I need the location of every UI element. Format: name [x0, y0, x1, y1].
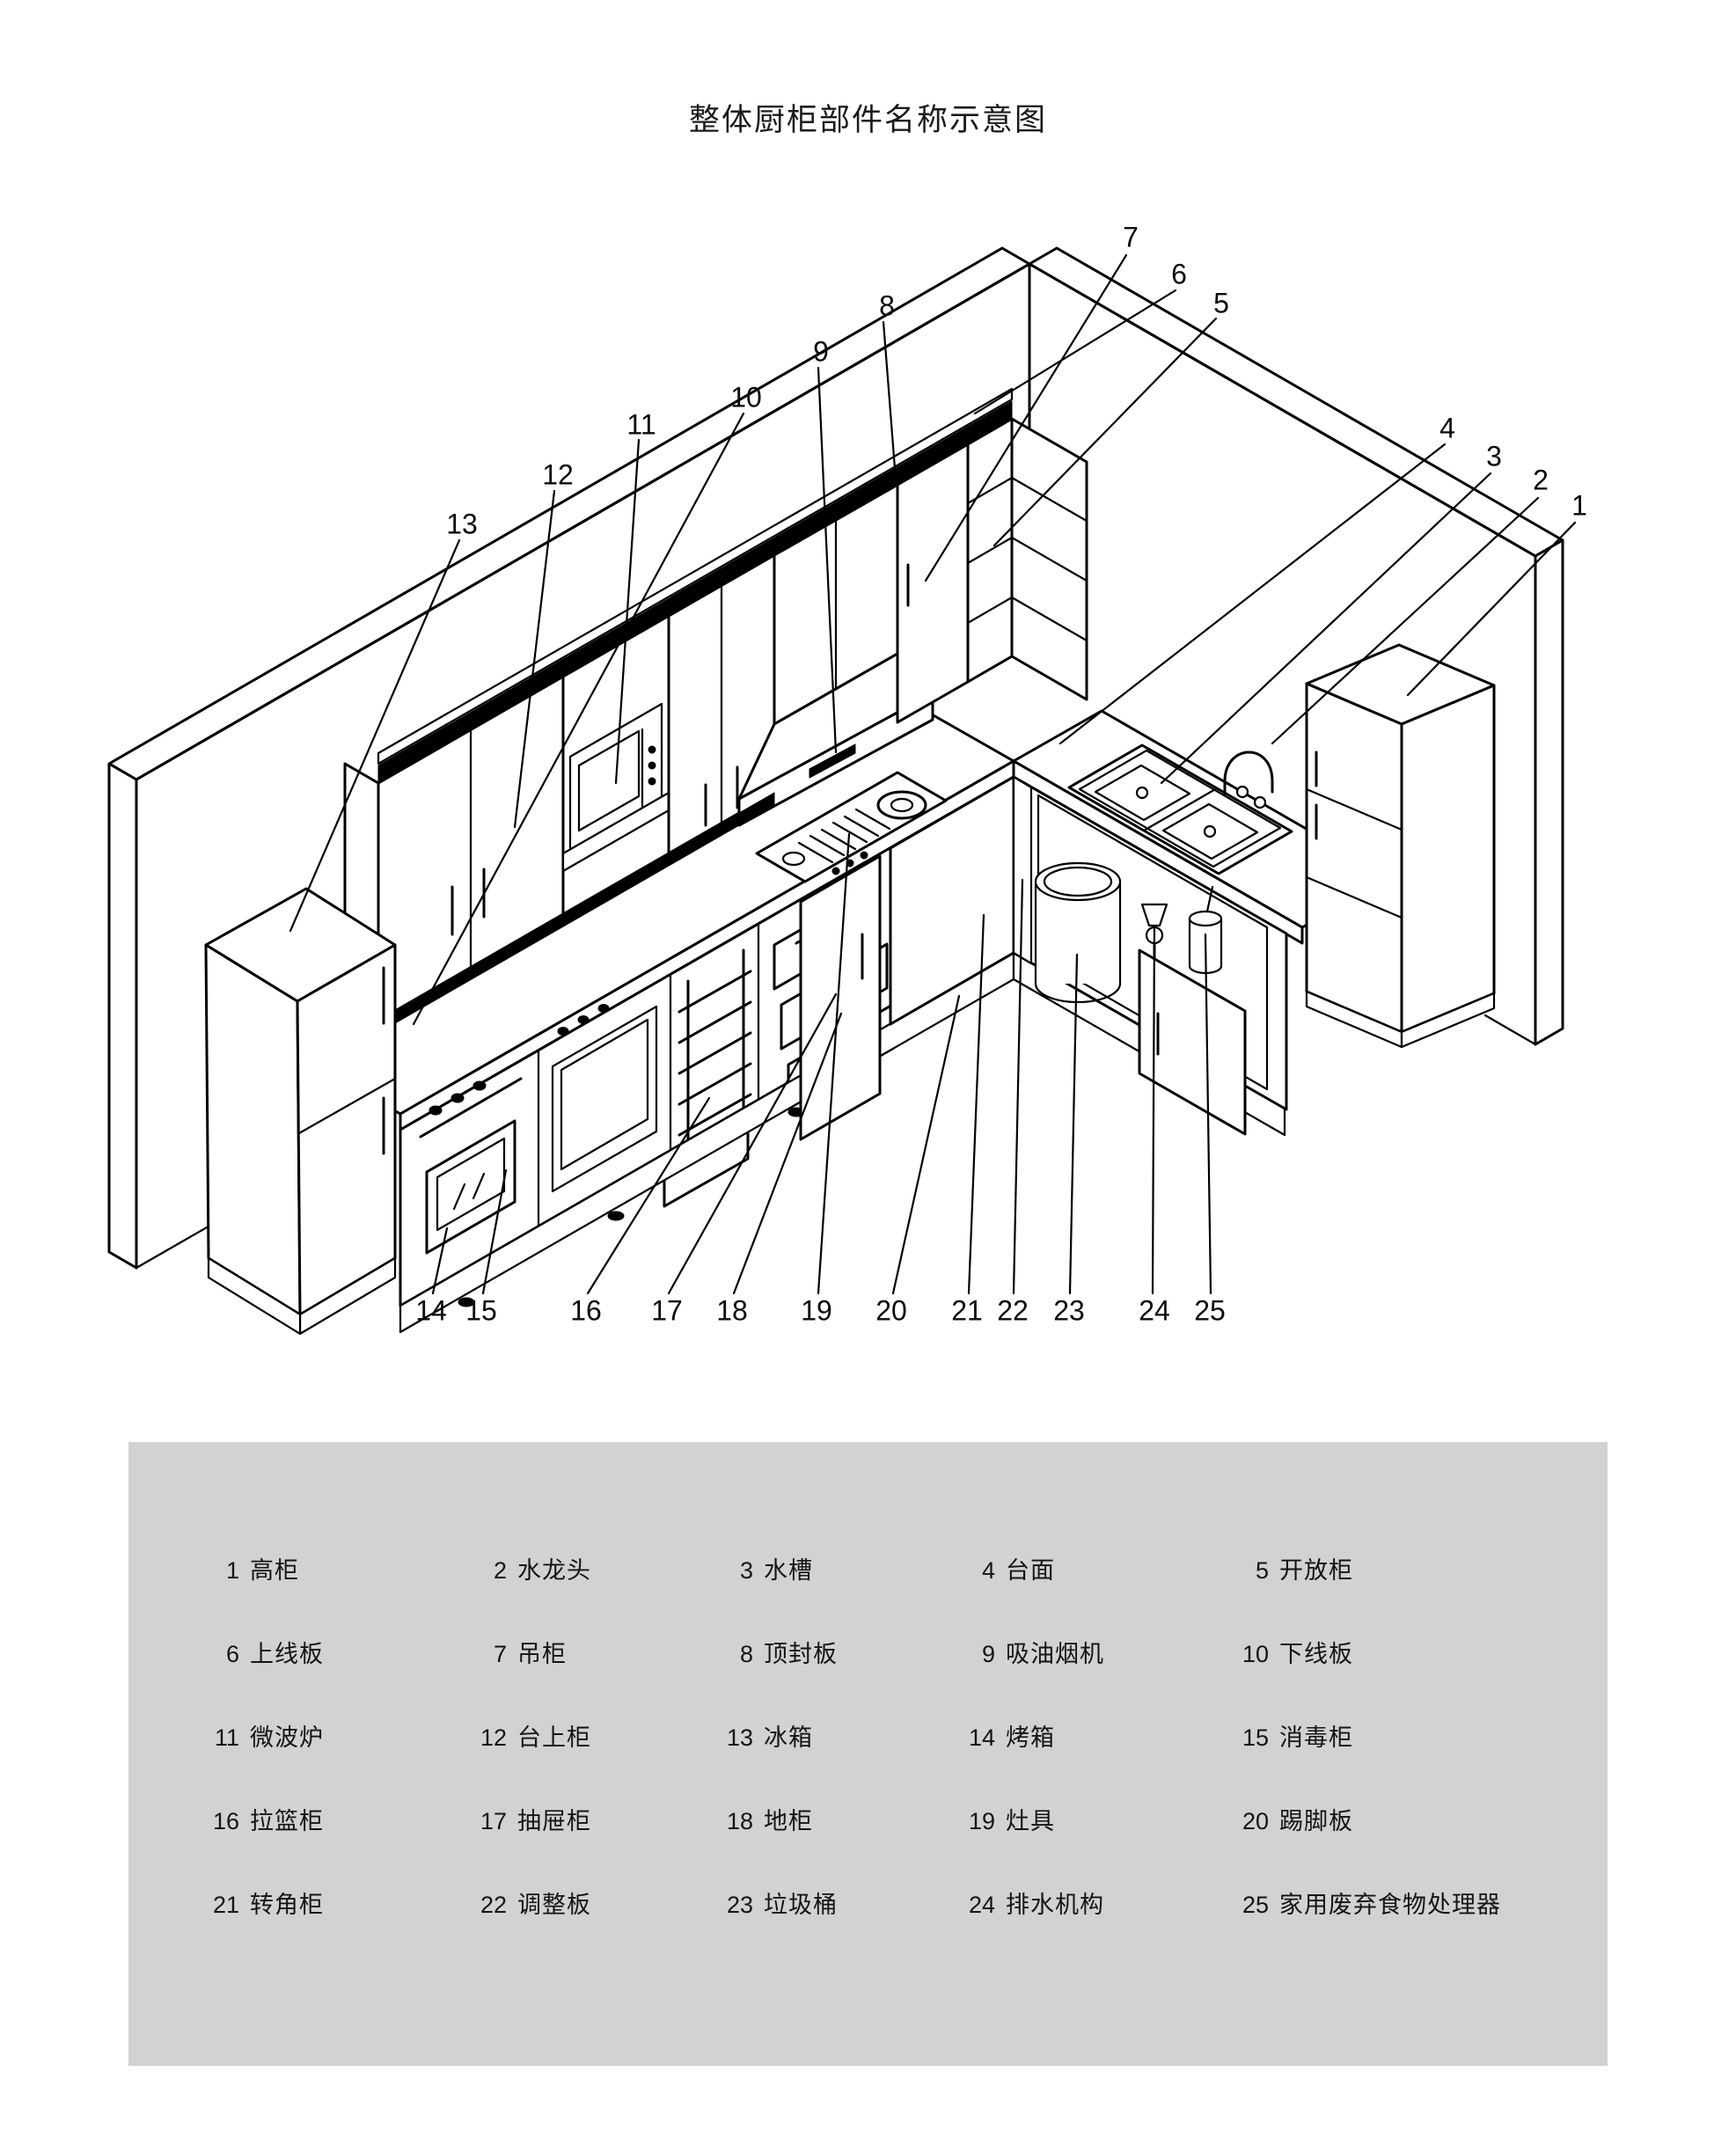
legend-item-name: 顶封板 — [764, 1635, 838, 1669]
legend-item-num: 7 — [468, 1641, 507, 1668]
legend-item-num: 20 — [1230, 1808, 1269, 1835]
legend-item-14: 14烤箱 — [956, 1718, 1230, 1753]
legend-item-num: 1 — [201, 1557, 239, 1585]
legend-item-12: 12台上柜 — [468, 1718, 714, 1753]
legend-item-num: 5 — [1230, 1557, 1269, 1585]
legend-item-19: 19灶具 — [956, 1802, 1230, 1836]
legend-item-num: 15 — [1230, 1724, 1269, 1752]
legend-item-16: 16拉篮柜 — [201, 1802, 468, 1836]
legend-item-21: 21转角柜 — [201, 1885, 468, 1920]
legend-item-name: 抽屉柜 — [517, 1802, 591, 1836]
legend-item-name: 调整板 — [517, 1885, 591, 1920]
legend-item-name: 排水机构 — [1006, 1885, 1104, 1920]
legend-item-name: 拉篮柜 — [250, 1802, 324, 1836]
legend-item-name: 踢脚板 — [1279, 1802, 1353, 1836]
legend-row-4: 16拉篮柜 17抽屉柜 18地柜 19灶具 20踢脚板 — [201, 1777, 1608, 1861]
hanging-cabinet-7 — [897, 444, 968, 722]
legend-item-1: 1高柜 — [201, 1551, 468, 1585]
legend-item-num: 18 — [714, 1808, 753, 1835]
kitchen-diagram: .f{fill:#ffffff;stroke:#000;stroke-width… — [0, 0, 1736, 1408]
legend-item-num: 6 — [201, 1641, 239, 1668]
open-door-base — [801, 856, 880, 1139]
legend-item-num: 12 — [468, 1724, 507, 1752]
fridge-13 — [206, 889, 395, 1334]
legend-row-2: 6上线板 7吊柜 8顶封板 9吸油烟机 10下线板 — [201, 1610, 1608, 1694]
legend-item-name: 台面 — [1006, 1551, 1055, 1585]
legend-item-name: 高柜 — [250, 1551, 299, 1585]
legend-item-num: 10 — [1230, 1641, 1269, 1668]
legend-item-15: 15消毒柜 — [1230, 1718, 1608, 1753]
legend-item-name: 微波炉 — [250, 1718, 324, 1753]
legend-item-4: 4台面 — [956, 1551, 1230, 1585]
legend-item-num: 19 — [956, 1808, 995, 1835]
legend-row-5: 21转角柜 22调整板 23垃圾桶 24排水机构 25家用废弃食物处理器 — [201, 1861, 1608, 1944]
legend-item-name: 灶具 — [1006, 1802, 1055, 1836]
legend-item-13: 13冰箱 — [714, 1718, 956, 1753]
legend-item-name: 开放柜 — [1279, 1551, 1353, 1585]
legend-item-11: 11微波炉 — [201, 1718, 468, 1753]
legend-item-num: 22 — [468, 1892, 507, 1919]
legend-item-num: 9 — [956, 1641, 995, 1668]
legend-item-25: 25家用废弃食物处理器 — [1230, 1885, 1608, 1920]
legend-item-num: 23 — [714, 1892, 753, 1919]
legend-item-6: 6上线板 — [201, 1635, 468, 1669]
legend-item-num: 21 — [201, 1892, 239, 1919]
legend-item-7: 7吊柜 — [468, 1635, 714, 1669]
legend-item-24: 24排水机构 — [956, 1885, 1230, 1920]
legend-item-name: 吸油烟机 — [1006, 1635, 1104, 1669]
adjust-board-22 — [1014, 777, 1031, 963]
legend-item-num: 17 — [468, 1808, 507, 1835]
page: 整体厨柜部件名称示意图 .f{fill:#ffffff;stroke:#000;… — [0, 0, 1736, 2138]
legend-item-num: 14 — [956, 1724, 995, 1752]
legend-item-name: 上线板 — [250, 1635, 324, 1669]
legend-item-9: 9吸油烟机 — [956, 1635, 1230, 1669]
legend-item-20: 20踢脚板 — [1230, 1802, 1608, 1836]
legend-item-name: 消毒柜 — [1279, 1718, 1353, 1753]
legend-item-name: 转角柜 — [250, 1885, 324, 1920]
legend-item-name: 冰箱 — [764, 1718, 813, 1753]
legend-item-name: 家用废弃食物处理器 — [1279, 1885, 1501, 1920]
legend-item-name: 台上柜 — [517, 1718, 591, 1753]
legend-item-22: 22调整板 — [468, 1885, 714, 1920]
legend-item-5: 5开放柜 — [1230, 1551, 1608, 1585]
legend-item-num: 11 — [201, 1724, 239, 1752]
legend-item-18: 18地柜 — [714, 1802, 956, 1836]
legend-item-name: 烤箱 — [1006, 1718, 1055, 1753]
legend-row-3: 11微波炉 12台上柜 13冰箱 14烤箱 15消毒柜 — [201, 1694, 1608, 1777]
tall-cabinet-1 — [1307, 645, 1494, 1047]
legend-item-name: 下线板 — [1279, 1635, 1353, 1669]
open-cabinet-5 — [968, 419, 1087, 699]
legend-item-name: 水槽 — [764, 1551, 813, 1585]
legend-item-name: 吊柜 — [517, 1635, 567, 1669]
legend-item-num: 2 — [468, 1557, 507, 1585]
legend-item-num: 16 — [201, 1808, 239, 1835]
legend-item-name: 水龙头 — [517, 1551, 591, 1585]
legend-panel: 1高柜 2水龙头 3水槽 4台面 5开放柜 6上线板 7吊柜 8顶封板 9吸油烟… — [128, 1442, 1608, 2066]
legend-item-num: 24 — [956, 1892, 995, 1919]
legend-item-num: 13 — [714, 1724, 753, 1752]
legend-item-2: 2水龙头 — [468, 1551, 714, 1585]
legend-item-10: 10下线板 — [1230, 1635, 1608, 1669]
legend-item-23: 23垃圾桶 — [714, 1885, 956, 1920]
legend-item-num: 25 — [1230, 1892, 1269, 1919]
trash-bin-23 — [1036, 863, 1120, 1002]
legend-item-name: 地柜 — [764, 1802, 813, 1836]
legend-item-17: 17抽屉柜 — [468, 1802, 714, 1836]
legend-item-3: 3水槽 — [714, 1551, 956, 1585]
legend-row-1: 1高柜 2水龙头 3水槽 4台面 5开放柜 — [201, 1527, 1608, 1610]
legend-item-num: 4 — [956, 1557, 995, 1585]
legend-item-num: 8 — [714, 1641, 753, 1668]
legend-item-num: 3 — [714, 1557, 753, 1585]
legend-item-name: 垃圾桶 — [764, 1885, 838, 1920]
legend-item-8: 8顶封板 — [714, 1635, 956, 1669]
